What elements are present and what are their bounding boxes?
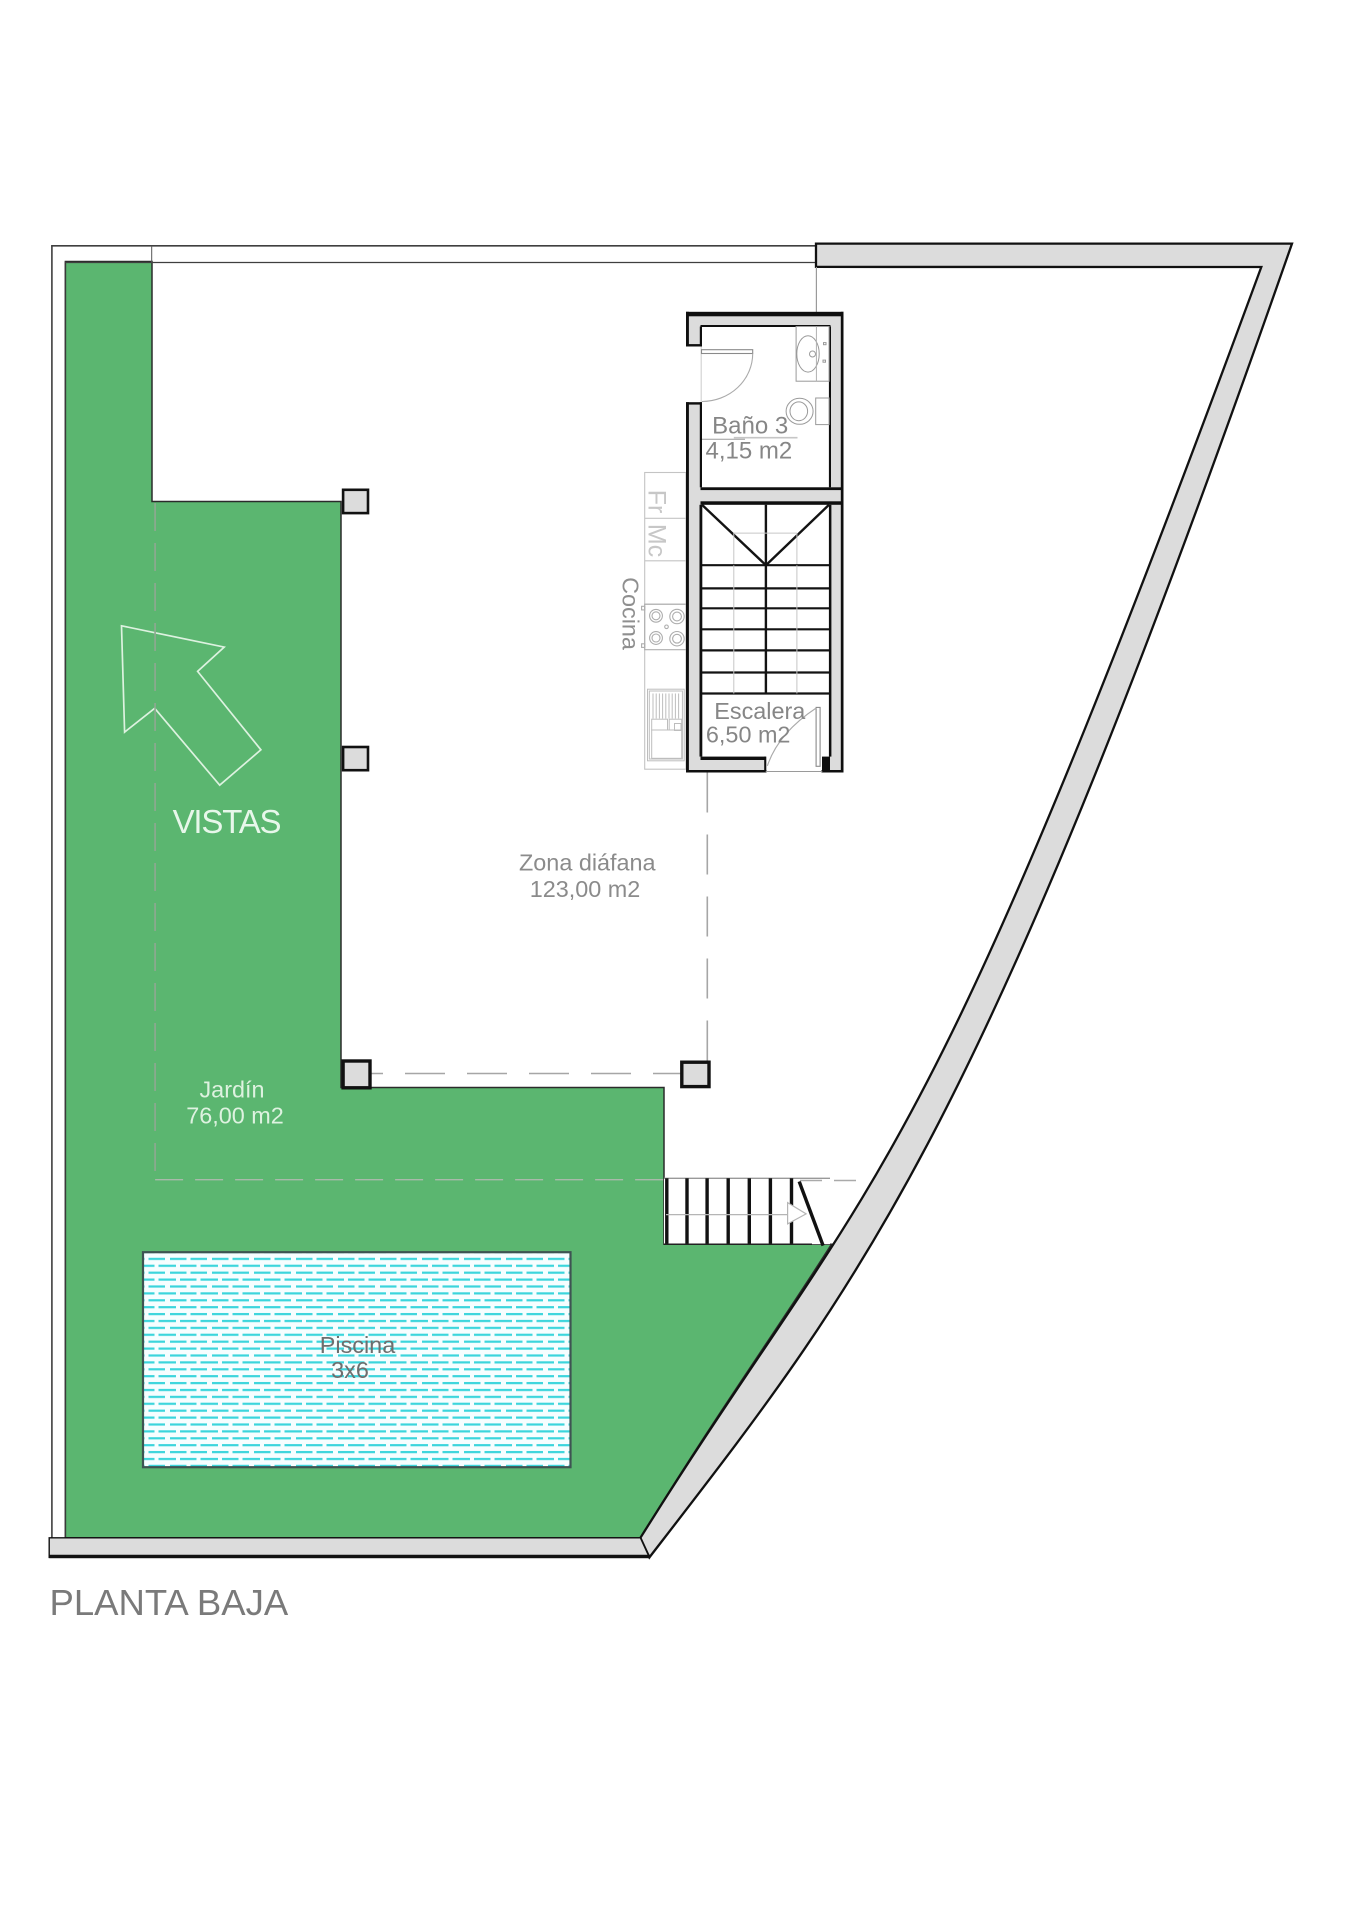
svg-text:Escalera: Escalera [714, 698, 806, 724]
svg-text:4,15 m2: 4,15 m2 [706, 437, 793, 464]
svg-text:6,50 m2: 6,50 m2 [706, 722, 791, 748]
svg-text:Zona diáfana: Zona diáfana [519, 849, 657, 875]
svg-text:PLANTA BAJA: PLANTA BAJA [50, 1582, 289, 1623]
svg-text:Jardín: Jardín [199, 1076, 264, 1102]
svg-text:Baño 3: Baño 3 [712, 413, 788, 440]
svg-text:Mc: Mc [643, 524, 671, 557]
svg-text:Fr: Fr [643, 490, 671, 514]
svg-text:76,00 m2: 76,00 m2 [186, 1102, 284, 1128]
svg-text:123,00 m2: 123,00 m2 [530, 876, 641, 902]
svg-text:3x6: 3x6 [331, 1357, 369, 1383]
svg-text:VISTAS: VISTAS [173, 803, 281, 840]
svg-text:Cocina: Cocina [618, 577, 644, 651]
svg-text:Piscina: Piscina [320, 1332, 396, 1358]
